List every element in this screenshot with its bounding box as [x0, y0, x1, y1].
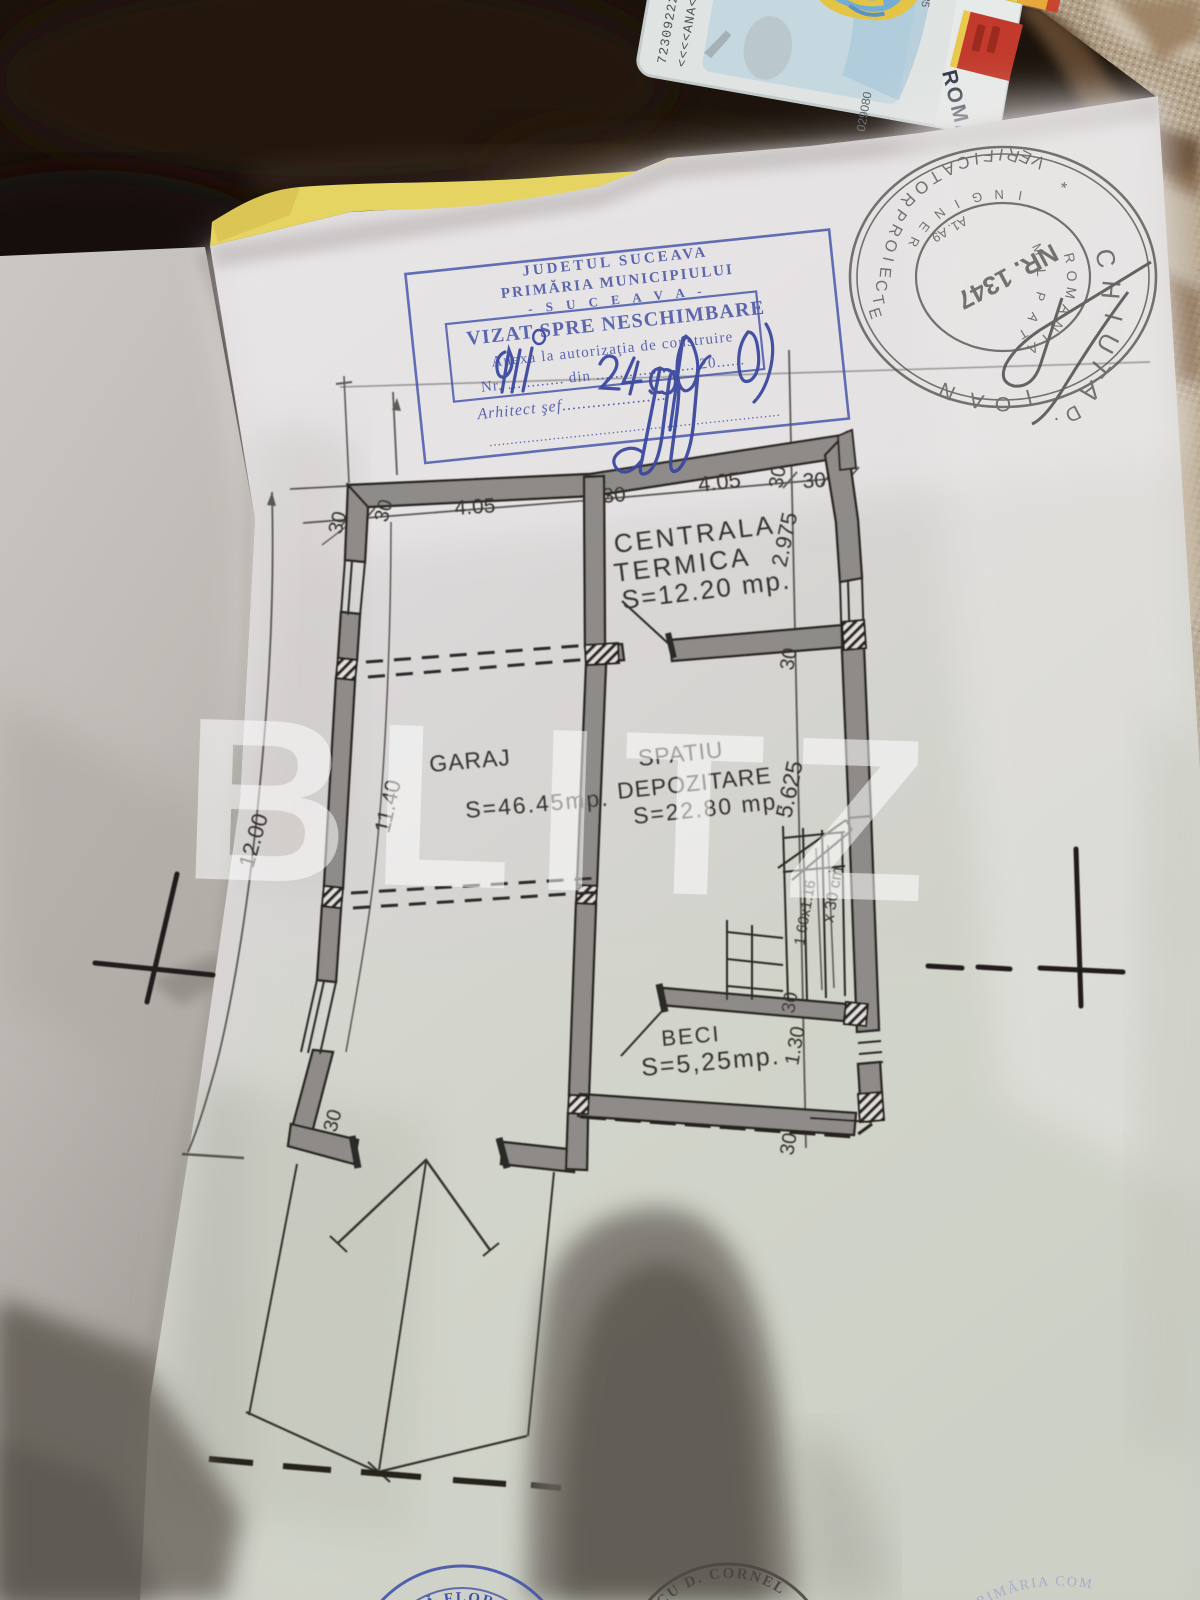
svg-text:H: H	[1095, 279, 1127, 300]
svg-text:F: F	[983, 146, 994, 166]
svg-text:30: 30	[778, 990, 802, 1014]
svg-text:N: N	[994, 187, 1004, 202]
svg-text:C: C	[872, 280, 890, 292]
svg-text:BECI: BECI	[660, 1021, 721, 1051]
svg-text:BLITZ: BLITZ	[178, 669, 953, 952]
svg-text:O: O	[1064, 270, 1080, 281]
svg-text:30: 30	[802, 469, 827, 493]
svg-text:30: 30	[776, 1131, 802, 1157]
svg-text:O: O	[995, 392, 1011, 415]
svg-text:E: E	[876, 266, 894, 278]
svg-text:30: 30	[776, 646, 802, 672]
svg-text:30: 30	[601, 483, 626, 508]
svg-text:30: 30	[765, 464, 791, 490]
svg-text:4.05: 4.05	[454, 494, 496, 520]
svg-text:4.05: 4.05	[697, 467, 743, 497]
